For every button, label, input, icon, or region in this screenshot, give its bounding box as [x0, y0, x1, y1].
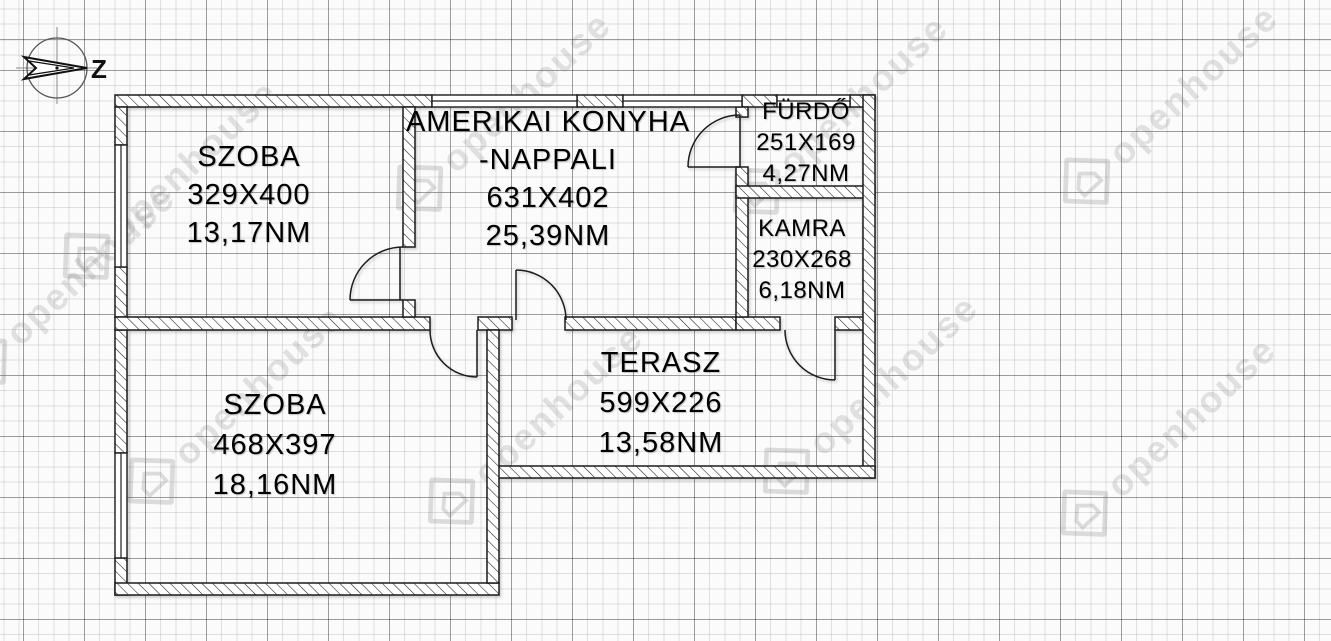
room-label-amerikai-konyha-nappali: AMERIKAI KONYHA -NAPPALI 631X402 25,39NM — [406, 103, 690, 255]
floor-plan-drawing: Z — [0, 0, 1331, 641]
room-name: AMERIKAI KONYHA — [406, 103, 690, 141]
room-area: 6,18NM — [752, 275, 852, 306]
wall-segment — [115, 330, 127, 453]
wall-segment — [736, 317, 780, 330]
door-swing — [688, 115, 740, 167]
door-swing — [516, 270, 566, 320]
compass-label: Z — [91, 54, 107, 84]
room-label-furdo: FÜRDŐ 251X169 4,27NM — [756, 96, 856, 189]
room-name: TERASZ — [599, 343, 724, 383]
room-area: 13,17NM — [187, 214, 312, 252]
room-dimensions: 468X397 — [213, 425, 338, 465]
room-label-szoba-1: SZOBA 329X400 13,17NM — [187, 138, 312, 252]
room-area: 25,39NM — [406, 217, 690, 255]
wall-segment — [478, 317, 512, 330]
room-name-2: -NAPPALI — [406, 141, 690, 179]
wall-segment — [115, 317, 430, 330]
window — [115, 453, 127, 558]
wall-segment — [487, 466, 875, 478]
compass: Z — [16, 27, 107, 104]
door-swing — [350, 247, 403, 300]
wall-segment — [115, 267, 127, 317]
room-label-szoba-2: SZOBA 468X397 18,16NM — [213, 385, 338, 505]
room-area: 18,16NM — [213, 465, 338, 505]
room-dimensions: 230X268 — [752, 244, 852, 275]
room-area: 4,27NM — [756, 158, 856, 189]
room-label-terasz: TERASZ 599X226 13,58NM — [599, 343, 724, 463]
window — [115, 145, 127, 267]
room-area: 13,58NM — [599, 423, 724, 463]
room-name: SZOBA — [187, 138, 312, 176]
room-dimensions: 599X226 — [599, 383, 724, 423]
wall-segment — [403, 300, 415, 317]
room-name: KAMRA — [752, 213, 852, 244]
door-swing — [785, 330, 835, 380]
room-dimensions: 329X400 — [187, 176, 312, 214]
wall-segment — [115, 583, 499, 595]
wall-segment — [115, 95, 432, 107]
room-name: SZOBA — [213, 385, 338, 425]
room-name: FÜRDŐ — [756, 96, 856, 127]
wall-segment — [863, 95, 875, 478]
room-dimensions: 251X169 — [756, 127, 856, 158]
room-label-kamra: KAMRA 230X268 6,18NM — [752, 213, 852, 306]
floor-plan-canvas: openhouse openhouse openhouse openhouse … — [0, 0, 1331, 641]
wall-segment — [565, 317, 736, 330]
compass-center-dot — [55, 66, 58, 69]
door-swing — [430, 330, 477, 377]
room-dimensions: 631X402 — [406, 179, 690, 217]
wall-segment — [487, 330, 499, 583]
wall-segment — [115, 107, 127, 145]
